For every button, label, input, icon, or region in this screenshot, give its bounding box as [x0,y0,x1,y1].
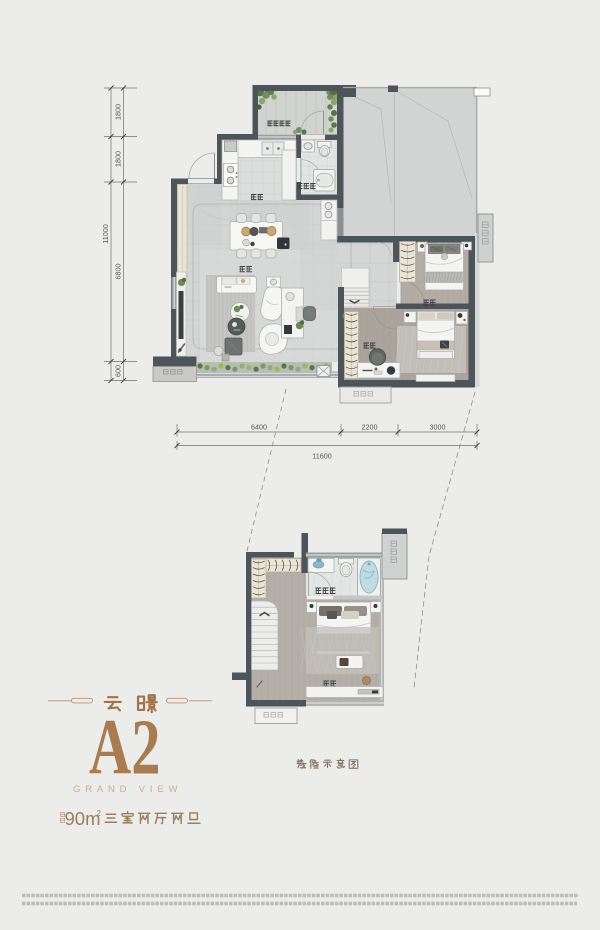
svg-text:90m: 90m [65,808,101,829]
svg-text:1800: 1800 [114,104,123,120]
svg-text:6800: 6800 [114,264,123,280]
svg-text:2: 2 [97,809,102,818]
svg-text:1800: 1800 [114,151,123,167]
svg-text:A2: A2 [89,704,160,792]
svg-text:3000: 3000 [430,423,446,432]
svg-text:600: 600 [114,365,123,377]
svg-text:6400: 6400 [251,423,267,432]
svg-text:GRAND VIEW: GRAND VIEW [73,784,182,795]
svg-text:11000: 11000 [101,224,110,243]
svg-text:11600: 11600 [312,452,331,461]
svg-text:2200: 2200 [362,423,378,432]
